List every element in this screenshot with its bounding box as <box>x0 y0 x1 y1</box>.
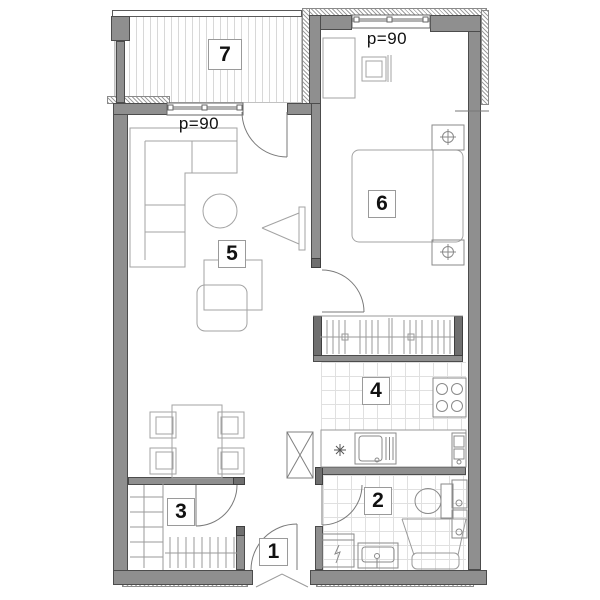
shower <box>402 519 466 569</box>
room-label-4: 4 <box>362 377 390 405</box>
dining-set <box>150 405 244 478</box>
room-label-6: 6 <box>368 190 396 218</box>
balcony-door <box>242 112 287 157</box>
bathroom-door <box>322 485 362 525</box>
built-in-wardrobe <box>313 316 463 354</box>
entrance-threshold <box>256 574 308 587</box>
closet-shelves <box>130 483 163 570</box>
room-label-2: 2 <box>364 487 392 515</box>
room3-door <box>196 485 237 526</box>
room-1-number: 1 <box>268 540 280 564</box>
room-5-number: 5 <box>226 242 238 266</box>
floor-plan-linework <box>0 0 600 600</box>
room-label-1: 1 <box>259 538 288 566</box>
room-label-3: 3 <box>167 498 195 526</box>
room-7-number: 7 <box>219 43 231 67</box>
nightstand-bottom <box>432 240 464 265</box>
side-table-and-chair <box>197 260 262 331</box>
room-6-number: 6 <box>376 192 388 216</box>
closet-hanging-rail <box>165 537 237 568</box>
stove <box>433 378 466 417</box>
parapet-label-bedroom: p=90 <box>356 29 418 49</box>
room-2-number: 2 <box>372 489 384 513</box>
toilet <box>415 484 453 518</box>
room-label-5: 5 <box>218 240 246 268</box>
room-label-7: 7 <box>208 39 242 70</box>
desk-and-chair <box>362 55 391 82</box>
tv-panel <box>262 207 305 250</box>
washing-machine <box>322 534 354 567</box>
room-3-number: 3 <box>175 500 187 524</box>
floor-plan: 7 6 5 4 3 2 1 p=90 p=90 <box>0 0 600 600</box>
bathroom-sink <box>358 543 398 568</box>
nightstand-top <box>432 125 464 150</box>
parapet-label-living: p=90 <box>168 114 230 134</box>
bathroom-cabinet <box>452 480 467 538</box>
installation-shaft <box>287 432 313 478</box>
bedroom-window <box>352 15 430 28</box>
bedroom-door <box>322 270 364 312</box>
room-4-number: 4 <box>370 379 382 403</box>
bedroom-wardrobe <box>323 38 355 98</box>
coffee-table <box>203 194 237 228</box>
